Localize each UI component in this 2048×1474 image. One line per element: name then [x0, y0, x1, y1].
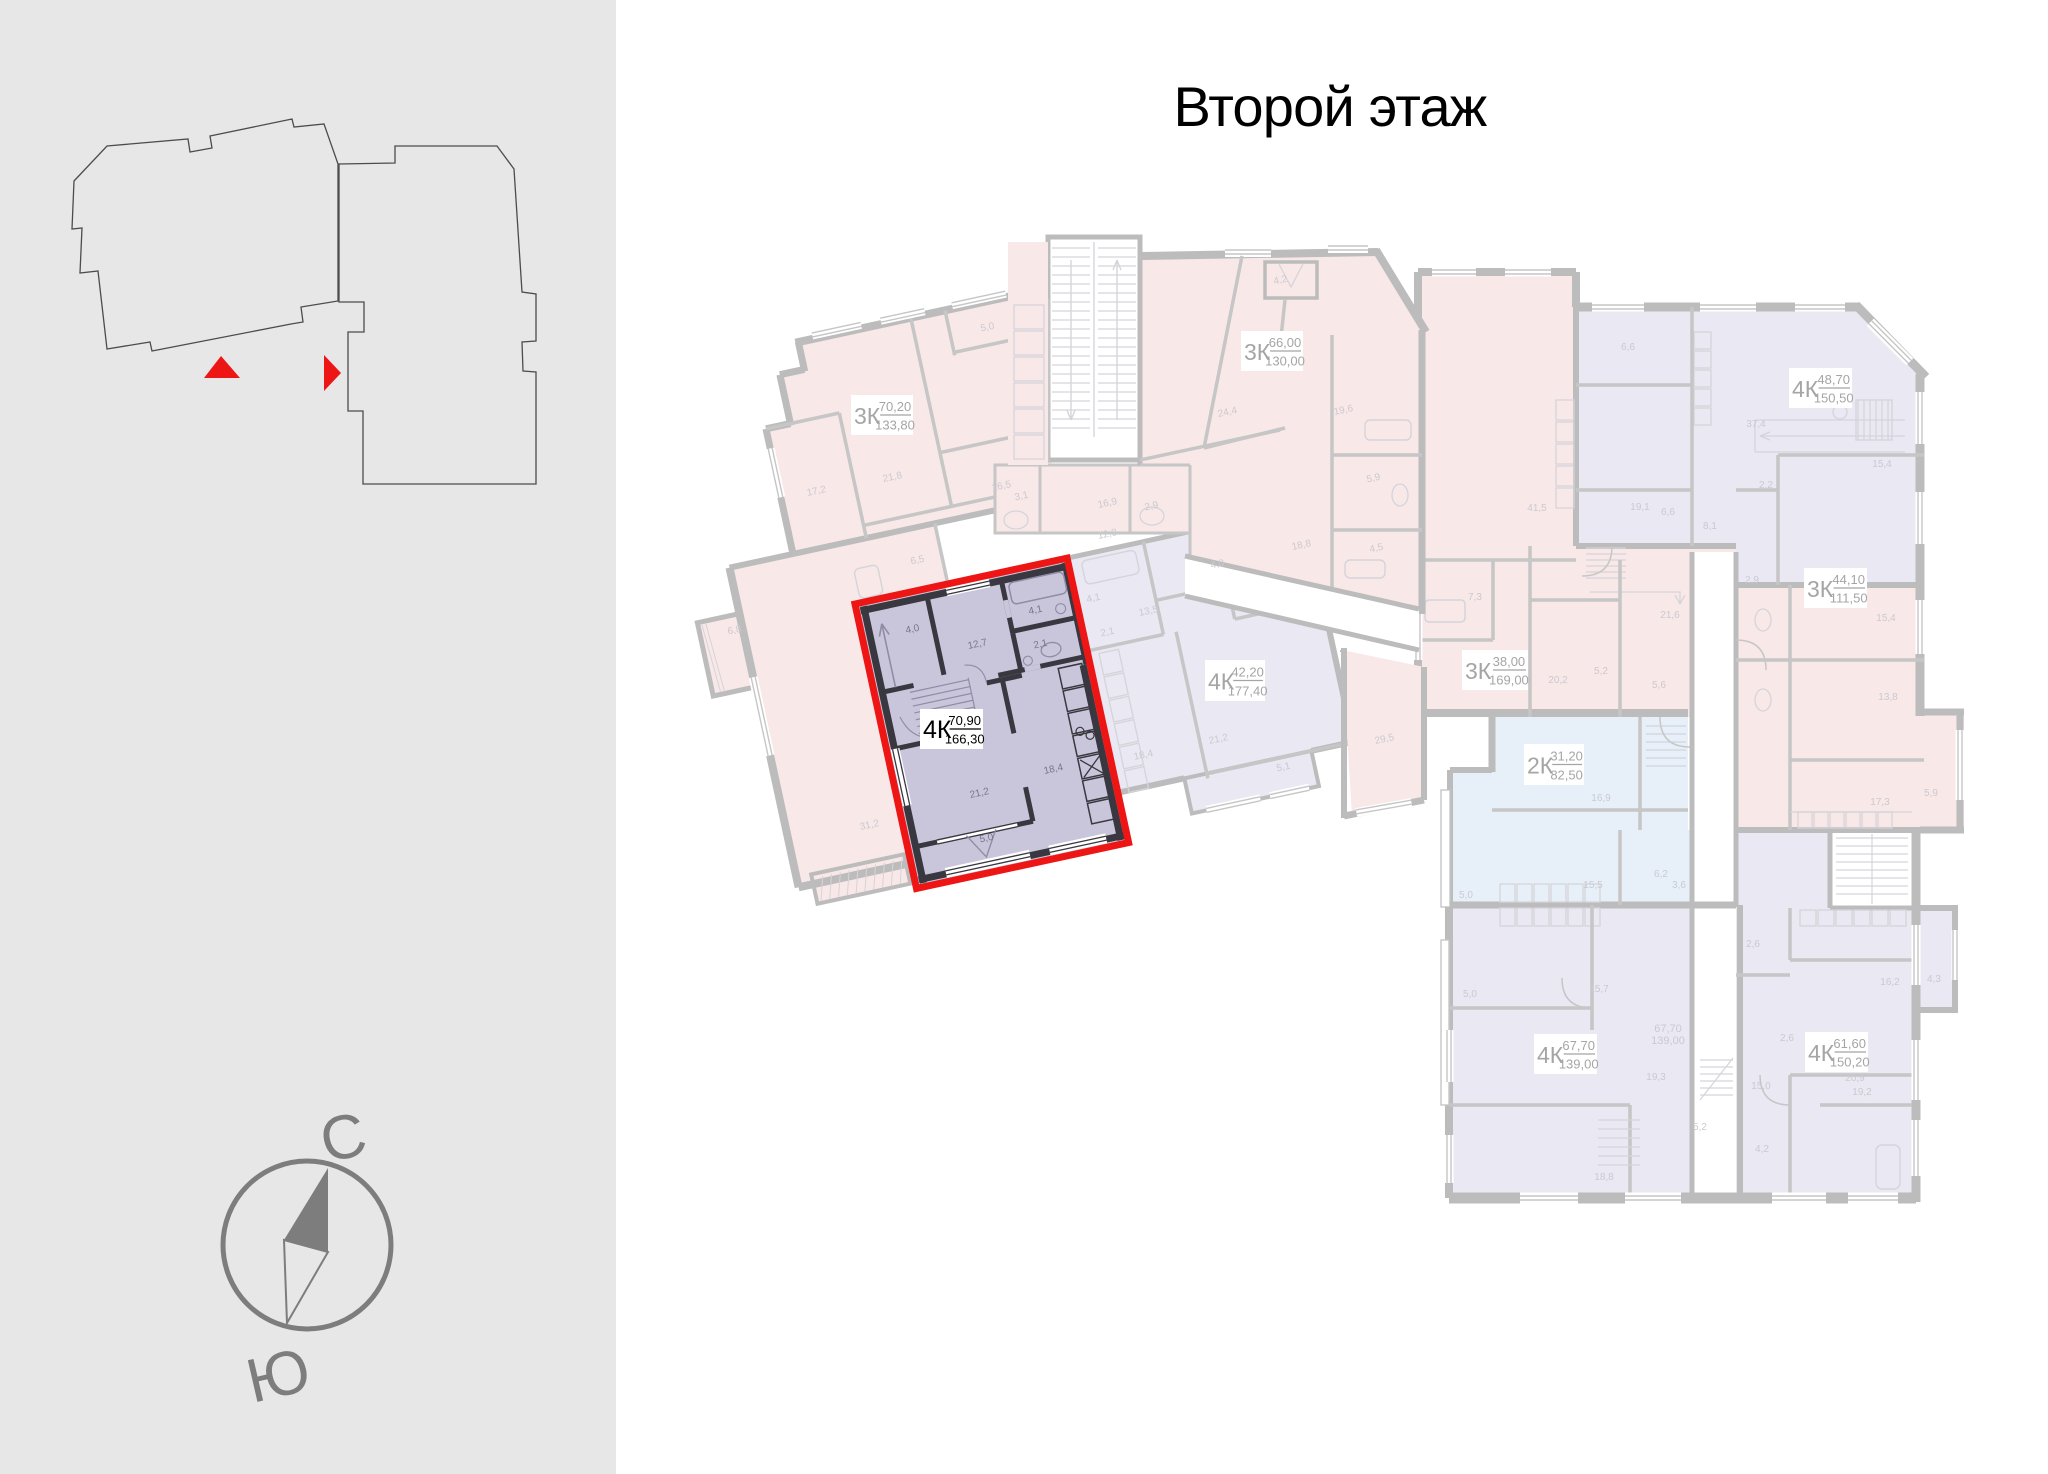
svg-text:20,2: 20,2	[1548, 675, 1568, 686]
svg-text:150,20: 150,20	[1830, 1054, 1870, 1069]
svg-text:2,6: 2,6	[1780, 1033, 1794, 1044]
svg-text:177,40: 177,40	[1228, 683, 1268, 698]
svg-text:82,50: 82,50	[1550, 767, 1583, 782]
svg-text:44,10: 44,10	[1832, 572, 1865, 587]
svg-text:15,5: 15,5	[1583, 880, 1603, 891]
svg-text:17,3: 17,3	[1870, 797, 1890, 808]
svg-text:42,20: 42,20	[1231, 664, 1264, 679]
svg-text:15,4: 15,4	[1872, 459, 1892, 470]
svg-text:16,9: 16,9	[1591, 793, 1611, 804]
svg-text:169,00: 169,00	[1489, 672, 1529, 687]
svg-text:18,8: 18,8	[1594, 1172, 1614, 1183]
svg-text:8,1: 8,1	[1703, 521, 1717, 532]
svg-text:15,7: 15,7	[1589, 984, 1609, 995]
svg-text:5,0: 5,0	[1459, 890, 1473, 901]
svg-text:61,60: 61,60	[1833, 1036, 1866, 1051]
svg-text:5,2: 5,2	[1594, 666, 1608, 677]
svg-text:2,6: 2,6	[1746, 939, 1760, 950]
svg-text:4,2: 4,2	[1755, 1144, 1769, 1155]
svg-text:31,20: 31,20	[1550, 748, 1583, 763]
svg-text:5,2: 5,2	[1693, 1122, 1707, 1133]
svg-text:70,20: 70,20	[879, 399, 912, 414]
svg-text:2,2: 2,2	[1759, 480, 1773, 491]
svg-text:2,9: 2,9	[1745, 575, 1759, 586]
svg-text:3,6: 3,6	[1672, 880, 1686, 891]
svg-text:67,70: 67,70	[1562, 1038, 1595, 1053]
svg-text:3К: 3К	[1465, 658, 1492, 684]
svg-text:150,50: 150,50	[1814, 390, 1854, 405]
svg-text:19,3: 19,3	[1646, 1072, 1666, 1083]
svg-text:6,6: 6,6	[1621, 342, 1635, 353]
svg-text:15,4: 15,4	[1876, 613, 1896, 624]
svg-text:38,00: 38,00	[1493, 654, 1526, 669]
svg-text:Второй этаж: Второй этаж	[1174, 75, 1488, 138]
svg-text:16,2: 16,2	[1880, 977, 1900, 988]
svg-text:5,0: 5,0	[1463, 989, 1477, 1000]
svg-text:19,1: 19,1	[1630, 502, 1650, 513]
svg-text:5,6: 5,6	[1652, 680, 1666, 691]
svg-text:37,4: 37,4	[1746, 419, 1766, 430]
svg-text:67,70: 67,70	[1654, 1023, 1682, 1035]
svg-text:48,70: 48,70	[1817, 372, 1850, 387]
svg-text:5,9: 5,9	[1924, 788, 1938, 799]
svg-text:133,80: 133,80	[875, 417, 915, 432]
svg-text:6,2: 6,2	[1654, 869, 1668, 880]
svg-text:4,3: 4,3	[1927, 974, 1941, 985]
svg-text:66,00: 66,00	[1269, 335, 1302, 350]
svg-text:166,30: 166,30	[945, 731, 985, 746]
svg-text:19,2: 19,2	[1852, 1087, 1872, 1098]
svg-text:13,8: 13,8	[1878, 692, 1898, 703]
svg-text:20,9: 20,9	[1845, 1073, 1865, 1084]
svg-text:139,00: 139,00	[1559, 1056, 1599, 1071]
svg-text:21,6: 21,6	[1660, 610, 1680, 621]
svg-text:130,00: 130,00	[1265, 353, 1305, 368]
svg-text:70,90: 70,90	[948, 713, 981, 728]
svg-text:139,00: 139,00	[1651, 1035, 1685, 1047]
svg-text:7,3: 7,3	[1468, 592, 1482, 603]
svg-text:111,50: 111,50	[1830, 590, 1868, 605]
svg-text:41,5: 41,5	[1527, 503, 1547, 514]
svg-text:6,6: 6,6	[1661, 507, 1675, 518]
